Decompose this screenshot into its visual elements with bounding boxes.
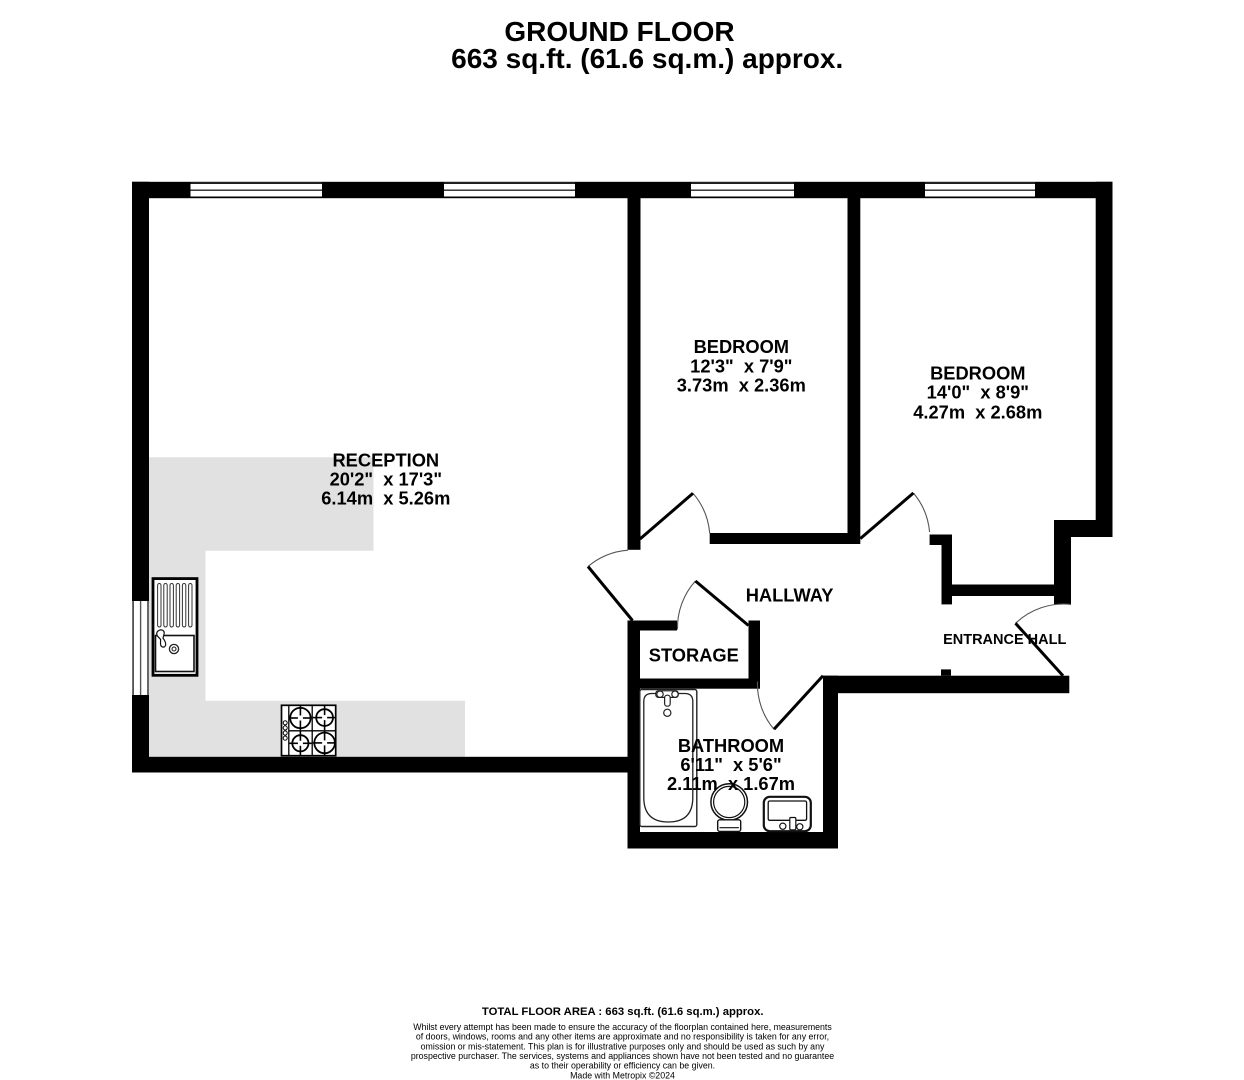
svg-text:6'11" x 5'6": 6'11" x 5'6" xyxy=(680,754,781,775)
svg-text:Whilst every attempt has been: Whilst every attempt has been made to en… xyxy=(413,1022,832,1032)
svg-text:of doors, windows, rooms and a: of doors, windows, rooms and any other i… xyxy=(416,1032,829,1042)
svg-text:BEDROOM: BEDROOM xyxy=(930,363,1025,384)
svg-text:14'0" x 8'9": 14'0" x 8'9" xyxy=(927,382,1029,403)
svg-text:TOTAL FLOOR AREA : 663 sq.ft.: TOTAL FLOOR AREA : 663 sq.ft. (61.6 sq.m… xyxy=(482,1006,764,1018)
svg-text:2.11m x 1.67m: 2.11m x 1.67m xyxy=(667,773,795,794)
svg-text:RECEPTION: RECEPTION xyxy=(332,449,439,470)
svg-text:BEDROOM: BEDROOM xyxy=(694,336,789,357)
svg-text:ENTRANCE HALL: ENTRANCE HALL xyxy=(943,632,1066,648)
svg-text:4.27m x 2.68m: 4.27m x 2.68m xyxy=(913,402,1042,423)
svg-text:as to their operability or eff: as to their operability or efficiency ca… xyxy=(530,1061,715,1071)
svg-text:Made with Metropix ©2024: Made with Metropix ©2024 xyxy=(570,1070,675,1080)
svg-text:663 sq.ft. (61.6 sq.m.) approx: 663 sq.ft. (61.6 sq.m.) approx. xyxy=(451,43,843,74)
svg-text:BATHROOM: BATHROOM xyxy=(678,735,784,756)
svg-text:omission or mis-statement. Thi: omission or mis-statement. This plan is … xyxy=(421,1041,825,1051)
svg-text:prospective purchaser. The ser: prospective purchaser. The services, sys… xyxy=(411,1051,834,1061)
svg-text:6.14m x 5.26m: 6.14m x 5.26m xyxy=(321,488,450,509)
svg-text:20'2" x 17'3": 20'2" x 17'3" xyxy=(330,468,442,489)
svg-text:12'3" x 7'9": 12'3" x 7'9" xyxy=(690,355,792,376)
svg-text:STORAGE: STORAGE xyxy=(649,645,739,666)
svg-text:3.73m x 2.36m: 3.73m x 2.36m xyxy=(677,374,806,395)
svg-text:HALLWAY: HALLWAY xyxy=(746,584,834,605)
